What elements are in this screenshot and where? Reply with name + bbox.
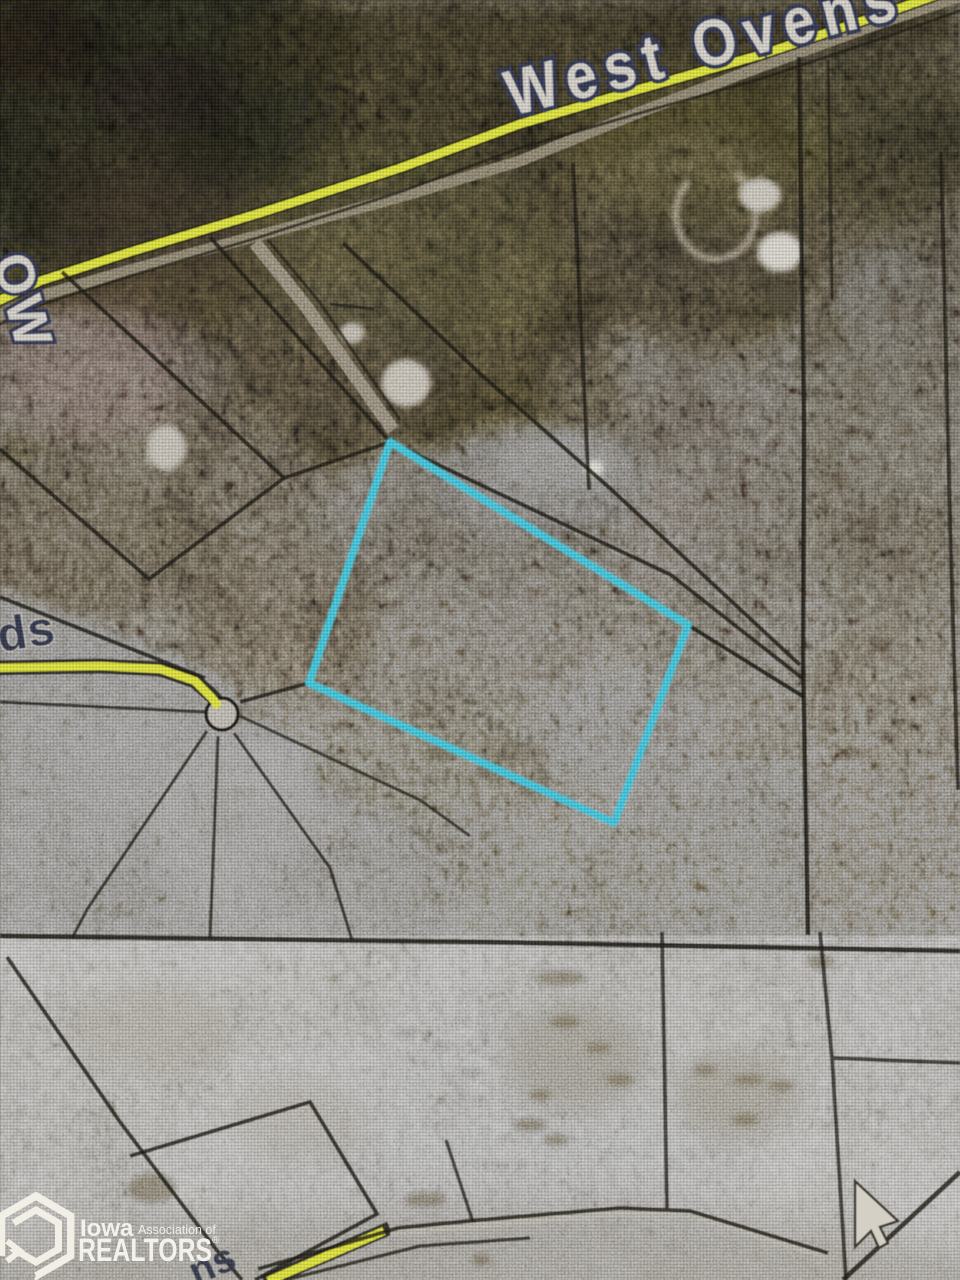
- svg-text:®: ®: [212, 1235, 220, 1246]
- svg-text:REALTORS: REALTORS: [78, 1232, 212, 1268]
